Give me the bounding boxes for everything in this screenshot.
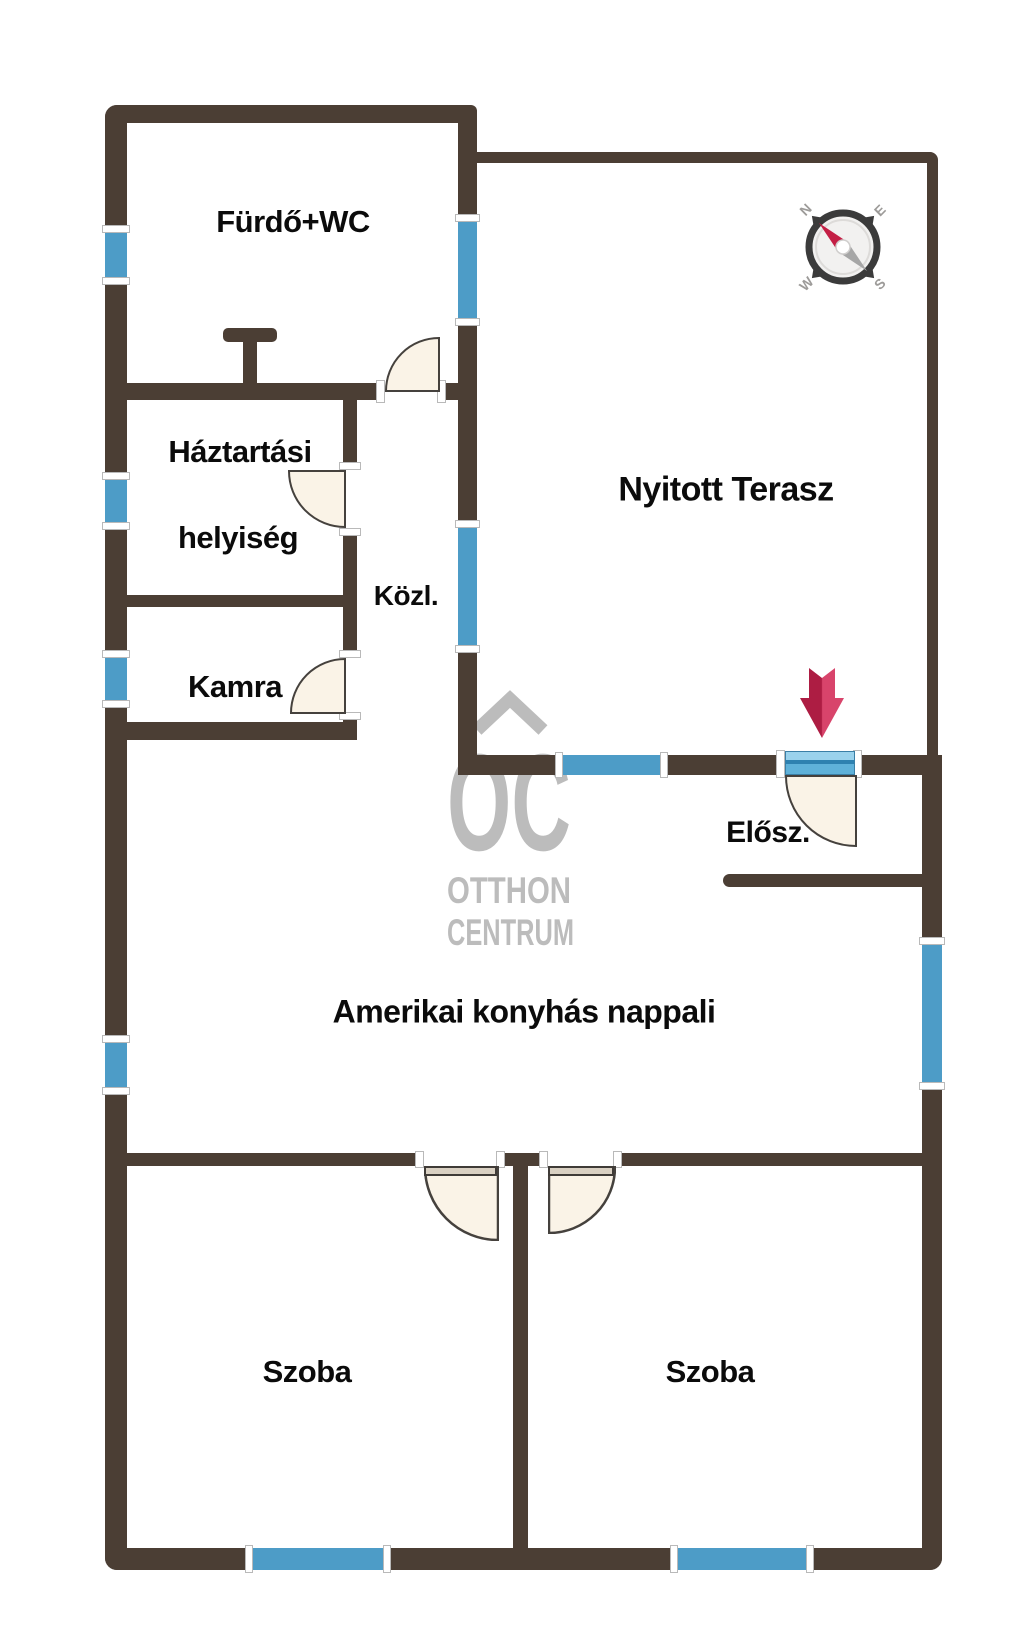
window-cap xyxy=(102,472,130,480)
door-jamb xyxy=(539,1151,548,1168)
room-label-bedroom-left: Szoba xyxy=(263,1354,352,1390)
window-cap xyxy=(660,752,668,778)
wall-top-bathroom xyxy=(105,105,477,123)
door-jamb xyxy=(776,750,785,778)
window-bedroom-left-bottom xyxy=(253,1548,383,1570)
window-cap xyxy=(102,1087,130,1095)
wall-terrace-right xyxy=(927,152,938,777)
window-cap xyxy=(455,520,480,528)
window-living-terrace xyxy=(563,755,660,775)
floor-plan: OC OTTHON CENTRUM xyxy=(0,0,1020,1640)
window-cap xyxy=(670,1545,678,1573)
window-bedroom-right-bottom xyxy=(678,1548,806,1570)
window-cap xyxy=(102,277,130,285)
window-corridor-terrace xyxy=(458,528,477,645)
wall-right-outer xyxy=(922,755,942,1570)
opening-bedroom-left-door xyxy=(424,1153,497,1166)
window-bathroom-terrace xyxy=(458,222,477,318)
window-cap xyxy=(919,937,945,945)
window-living-right xyxy=(922,945,942,1082)
room-label-entry-hall: Elősz. xyxy=(726,816,810,850)
room-label-living: Amerikai konyhás nappali xyxy=(333,994,716,1031)
window-utility-left xyxy=(105,480,127,522)
window-cap xyxy=(806,1545,814,1573)
window-cap xyxy=(102,700,130,708)
door-jamb xyxy=(339,528,361,536)
door-jamb xyxy=(376,380,385,403)
window-cap xyxy=(455,645,480,653)
window-cap xyxy=(102,522,130,530)
window-cap xyxy=(383,1545,391,1573)
watermark-line1: OTTHON xyxy=(447,870,571,911)
room-label-bathroom: Fürdő+WC xyxy=(216,204,370,240)
room-label-terrace: Nyitott Terasz xyxy=(618,471,833,510)
window-cap xyxy=(102,650,130,658)
compass-icon: N E S W xyxy=(783,187,903,307)
wall-left-outer xyxy=(105,105,127,1570)
window-cap xyxy=(245,1545,253,1573)
watermark-line2: CENTRUM xyxy=(447,912,574,952)
window-cap xyxy=(455,318,480,326)
window-cap xyxy=(102,1035,130,1043)
door-jamb xyxy=(415,1151,424,1168)
door-swing-bedroom-left xyxy=(424,1166,499,1241)
room-label-pantry: Kamra xyxy=(188,669,282,705)
door-swing-bathroom xyxy=(385,337,440,392)
wall-pantry-bottom xyxy=(105,722,357,740)
window-cap xyxy=(455,214,480,222)
entrance-door xyxy=(785,751,855,775)
window-cap xyxy=(919,1082,945,1090)
room-label-utility-1: Háztartási xyxy=(168,434,311,470)
wall-entry-hall xyxy=(723,874,922,887)
door-swing-bedroom-right xyxy=(548,1166,616,1234)
door-jamb xyxy=(339,462,361,470)
opening-bedroom-right-door xyxy=(548,1153,614,1166)
room-label-corridor: Közl. xyxy=(374,580,438,612)
wall-bathroom-right xyxy=(458,105,477,775)
door-leaf-bedroom-left xyxy=(424,1166,497,1176)
window-bathroom-left xyxy=(105,233,127,277)
room-label-bedroom-right: Szoba xyxy=(666,1354,755,1390)
window-pantry-left xyxy=(105,658,127,700)
window-cap xyxy=(555,752,563,778)
room-label-utility-2: helyiség xyxy=(178,520,298,556)
entrance-arrow-icon xyxy=(800,668,844,738)
window-cap xyxy=(102,225,130,233)
wall-wc-stub-stem xyxy=(243,342,257,389)
wall-bedrooms-divider xyxy=(513,1153,528,1548)
window-living-left xyxy=(105,1043,127,1087)
door-leaf-bedroom-right xyxy=(548,1166,614,1176)
wall-utility-pantry-divider xyxy=(105,595,357,607)
wall-wc-stub-bar xyxy=(223,328,277,342)
wall-bottom-outer xyxy=(105,1548,942,1570)
door-jamb xyxy=(339,650,361,658)
door-swing-pantry xyxy=(290,658,346,714)
wall-terrace-top xyxy=(470,152,937,163)
compass-south-label: S xyxy=(871,275,889,293)
